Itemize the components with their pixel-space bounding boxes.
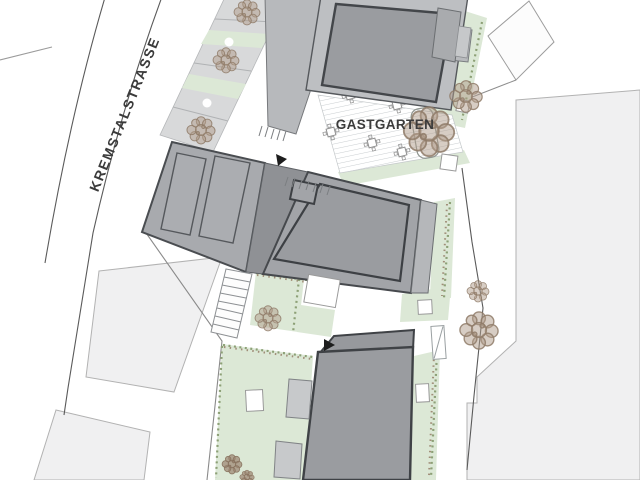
green-court-b [297, 305, 335, 337]
ramp-icon [431, 326, 446, 360]
site-plan: KREMSTALSTRASSE GASTGARTEN [0, 0, 640, 480]
parcel-east [467, 90, 640, 480]
parcel-northeast [488, 1, 554, 80]
tree-icon [467, 281, 489, 302]
parcel-southwest-2 [34, 410, 150, 480]
plot-line-west [0, 47, 52, 60]
building-middle-roof-notch [290, 180, 318, 204]
entrance-arrow-icon [276, 154, 287, 166]
tree-icon [460, 312, 498, 349]
street-edge-west [45, 0, 106, 263]
balcony-1 [286, 379, 312, 419]
street-label: KREMSTALSTRASSE [86, 34, 163, 193]
stairs-icon [211, 269, 252, 338]
building-south-main [303, 347, 413, 480]
building-south [274, 330, 414, 480]
parcel-southwest-1 [86, 257, 222, 392]
gastgarten-label: GASTGARTEN [336, 117, 435, 132]
balcony-2 [274, 441, 302, 479]
site-plan-svg: KREMSTALSTRASSE GASTGARTEN [0, 0, 640, 480]
terrace-box [304, 274, 340, 307]
